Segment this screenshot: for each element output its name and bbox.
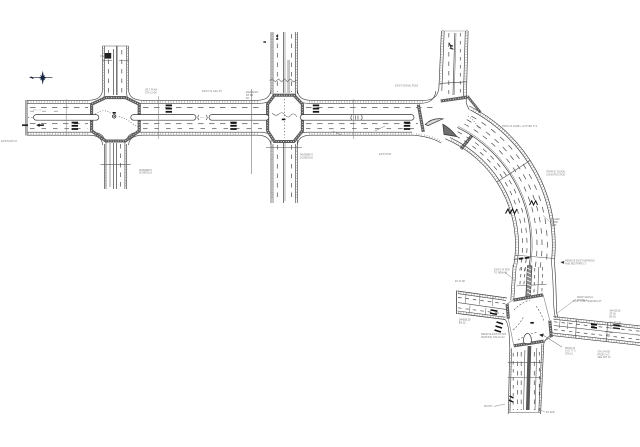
svg-text:STA 24+910: STA 24+910 [598,350,611,353]
svg-text:EX C+G: EX C+G [33,110,41,112]
svg-text:AND RESTRIPE LT: AND RESTRIPE LT [565,263,586,266]
svg-text:PHASE 2: PHASE 2 [577,299,588,302]
svg-text:EX 12: EX 12 [459,322,466,325]
svg-text:SEE SHT 10: SEE SHT 10 [598,357,612,359]
svg-text:24+910.10: 24+910.10 [610,311,622,313]
svg-text:10: 10 [246,97,249,100]
svg-text:PROP C+G: PROP C+G [598,354,610,356]
svg-text:CONSTRUCTION: CONSTRUCTION [546,173,566,176]
svg-text:EX EOP: EX EOP [546,411,555,414]
svg-text:EXIST 24 C&G RT: EXIST 24 C&G RT [202,90,222,93]
svg-text:10+10: 10+10 [610,328,617,330]
svg-text:PROP 24 CURB + GUTTER TY2: PROP 24 CURB + GUTTER TY2 [502,125,538,128]
svg-text:AHD: AHD [551,224,556,227]
svg-text:24+910.10: 24+910.10 [610,322,622,324]
svg-text:EXIST SIGNAL POLE: EXIST SIGNAL POLE [395,85,419,88]
svg-text:STA 12+00: STA 12+00 [145,91,157,94]
svg-text:EX 24 SD: EX 24 SD [455,281,465,283]
svg-text:SCHEDULE: SCHEDULE [300,156,313,159]
svg-text:EX ST: EX ST [610,325,617,327]
svg-text:SCHEDULE: SCHEDULE [139,172,152,175]
svg-text:ST 18: ST 18 [610,314,617,316]
svg-text:MATCH: MATCH [484,405,493,408]
svg-text:EXIST EOP 24: EXIST EOP 24 [1,140,18,143]
svg-text:EXIST R/W: EXIST R/W [379,153,392,156]
svg-text:EX 10: EX 10 [610,316,617,318]
svg-text:MARKING STA 10+10: MARKING STA 10+10 [481,336,505,339]
svg-text:STA 10: STA 10 [565,353,573,356]
